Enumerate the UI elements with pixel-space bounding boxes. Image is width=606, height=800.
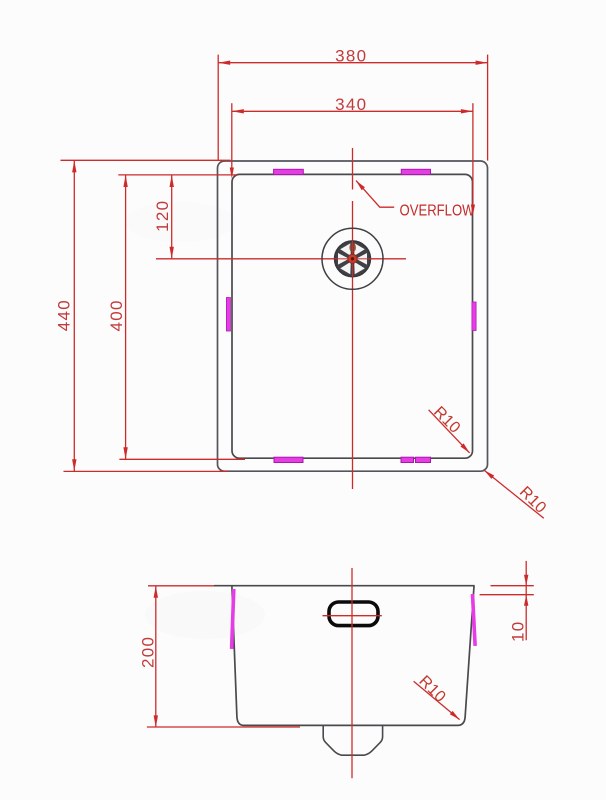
svg-text:440: 440 bbox=[55, 299, 74, 331]
svg-text:10: 10 bbox=[509, 620, 528, 642]
svg-text:200: 200 bbox=[139, 636, 158, 668]
svg-text:120: 120 bbox=[153, 200, 172, 232]
svg-text:340: 340 bbox=[335, 95, 367, 114]
svg-text:400: 400 bbox=[107, 299, 126, 331]
svg-text:380: 380 bbox=[335, 47, 367, 66]
svg-text:OVERFLOW: OVERFLOW bbox=[400, 203, 475, 220]
